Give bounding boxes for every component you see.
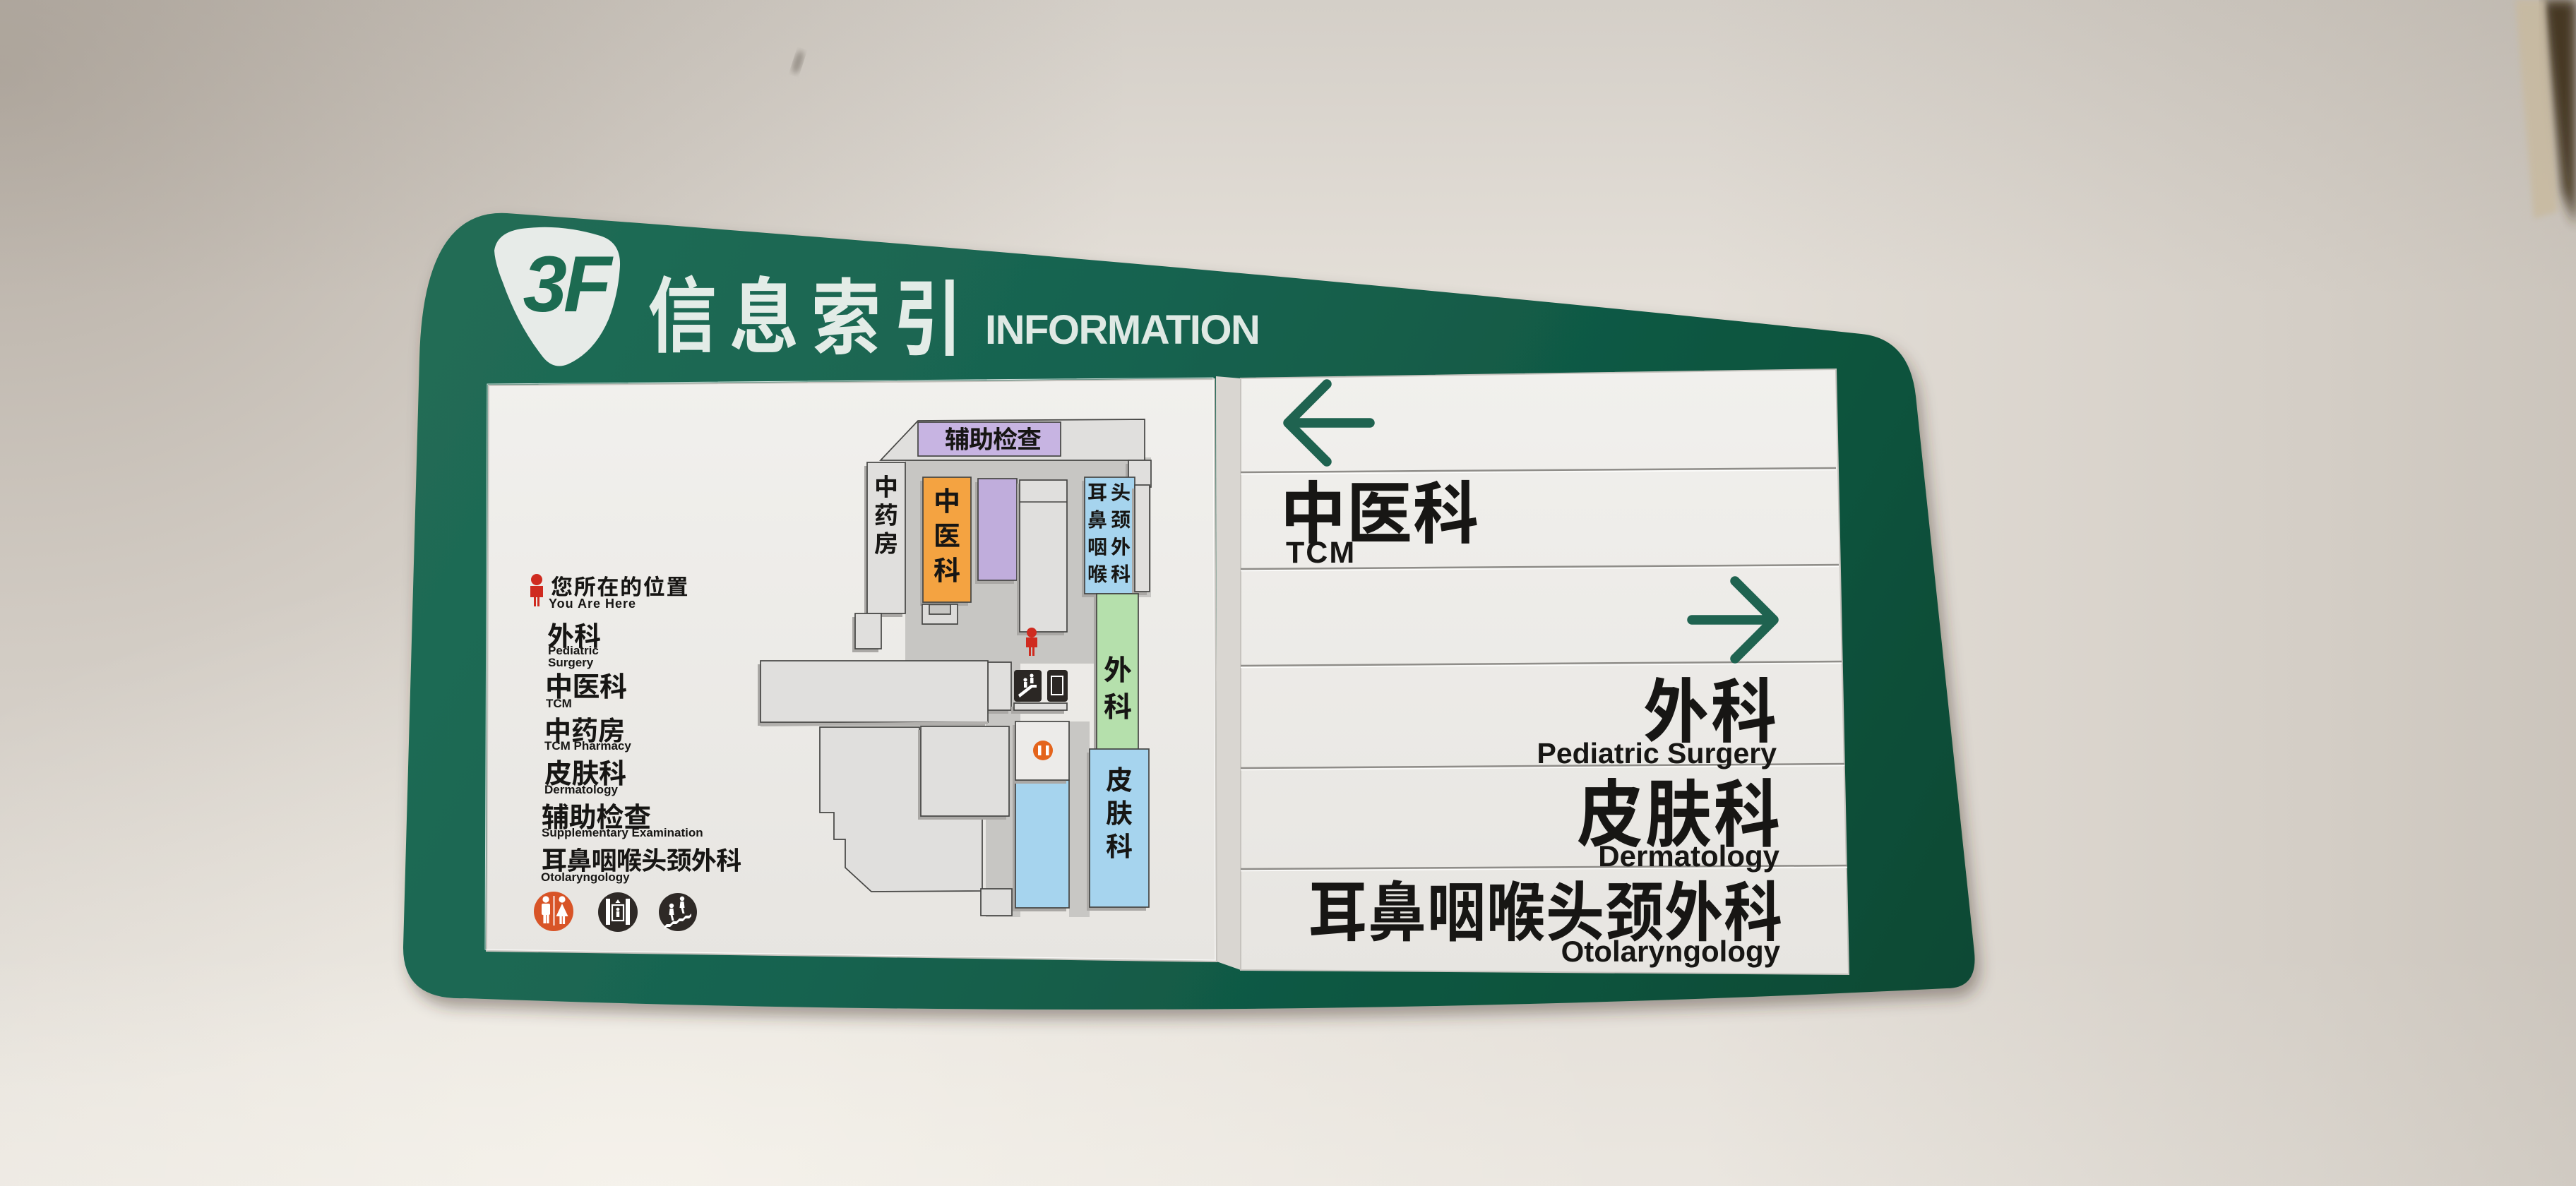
- svg-text:Dermatology: Dermatology: [1598, 839, 1779, 873]
- svg-text:Surgery: Surgery: [548, 656, 594, 669]
- svg-text:Pediatric Surgery: Pediatric Surgery: [1537, 737, 1777, 769]
- svg-text:3F: 3F: [523, 240, 614, 328]
- svg-text:Otolaryngology: Otolaryngology: [541, 870, 630, 884]
- svg-text:TCM: TCM: [546, 697, 572, 710]
- svg-text:You Are Here: You Are Here: [549, 597, 636, 611]
- svg-text:INFORMATION: INFORMATION: [985, 307, 1259, 353]
- svg-text:TCM: TCM: [1286, 536, 1356, 570]
- svg-text:Dermatology: Dermatology: [544, 783, 618, 796]
- svg-text:TCM Pharmacy: TCM Pharmacy: [544, 739, 631, 753]
- svg-text:Supplementary Examination: Supplementary Examination: [542, 826, 703, 839]
- svg-text:Otolaryngology: Otolaryngology: [1561, 935, 1781, 968]
